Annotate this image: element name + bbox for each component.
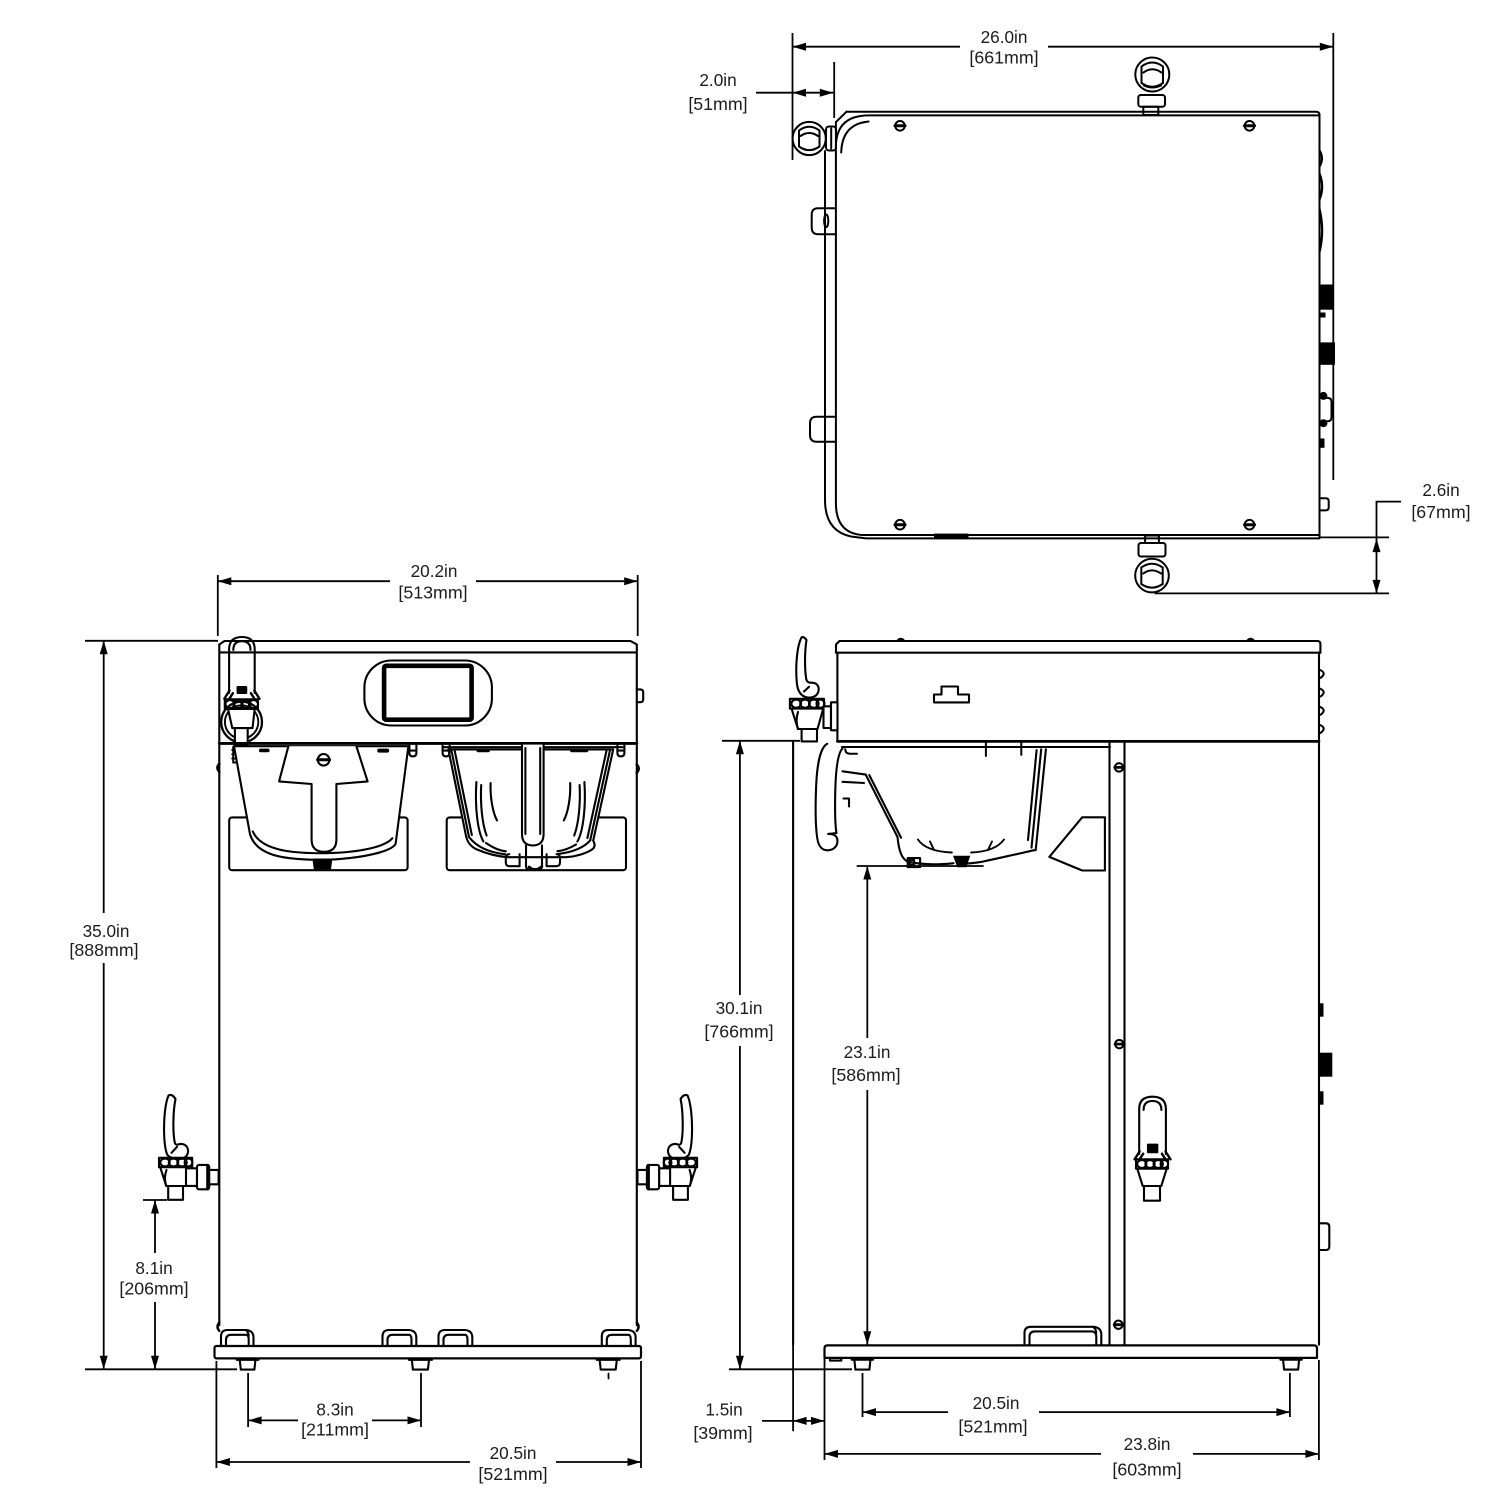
svg-text:[603mm]: [603mm] [1112,1460,1181,1480]
svg-text:23.8in: 23.8in [1124,1434,1171,1454]
svg-text:[67mm]: [67mm] [1411,502,1470,522]
svg-text:20.5in: 20.5in [490,1443,537,1463]
svg-text:1.5in: 1.5in [705,1400,742,1420]
svg-text:30.1in: 30.1in [716,998,763,1018]
svg-text:20.5in: 20.5in [973,1393,1020,1413]
svg-text:[521mm]: [521mm] [958,1417,1027,1437]
svg-text:[661mm]: [661mm] [969,48,1038,68]
svg-text:[51mm]: [51mm] [688,94,747,114]
svg-text:26.0in: 26.0in [981,27,1028,47]
svg-text:[888mm]: [888mm] [69,940,138,960]
svg-text:[586mm]: [586mm] [831,1065,900,1085]
svg-text:[513mm]: [513mm] [398,583,467,603]
svg-text:8.1in: 8.1in [135,1258,172,1278]
svg-text:[766mm]: [766mm] [704,1022,773,1042]
svg-text:20.2in: 20.2in [411,561,458,581]
svg-text:[521mm]: [521mm] [478,1464,547,1484]
svg-text:35.0in: 35.0in [83,921,130,941]
svg-text:2.6in: 2.6in [1422,480,1459,500]
svg-text:2.0in: 2.0in [699,70,736,90]
svg-text:[206mm]: [206mm] [119,1279,188,1299]
svg-text:[39mm]: [39mm] [693,1423,752,1443]
svg-text:23.1in: 23.1in [844,1042,891,1062]
svg-text:[211mm]: [211mm] [301,1420,369,1440]
svg-text:8.3in: 8.3in [316,1400,353,1420]
